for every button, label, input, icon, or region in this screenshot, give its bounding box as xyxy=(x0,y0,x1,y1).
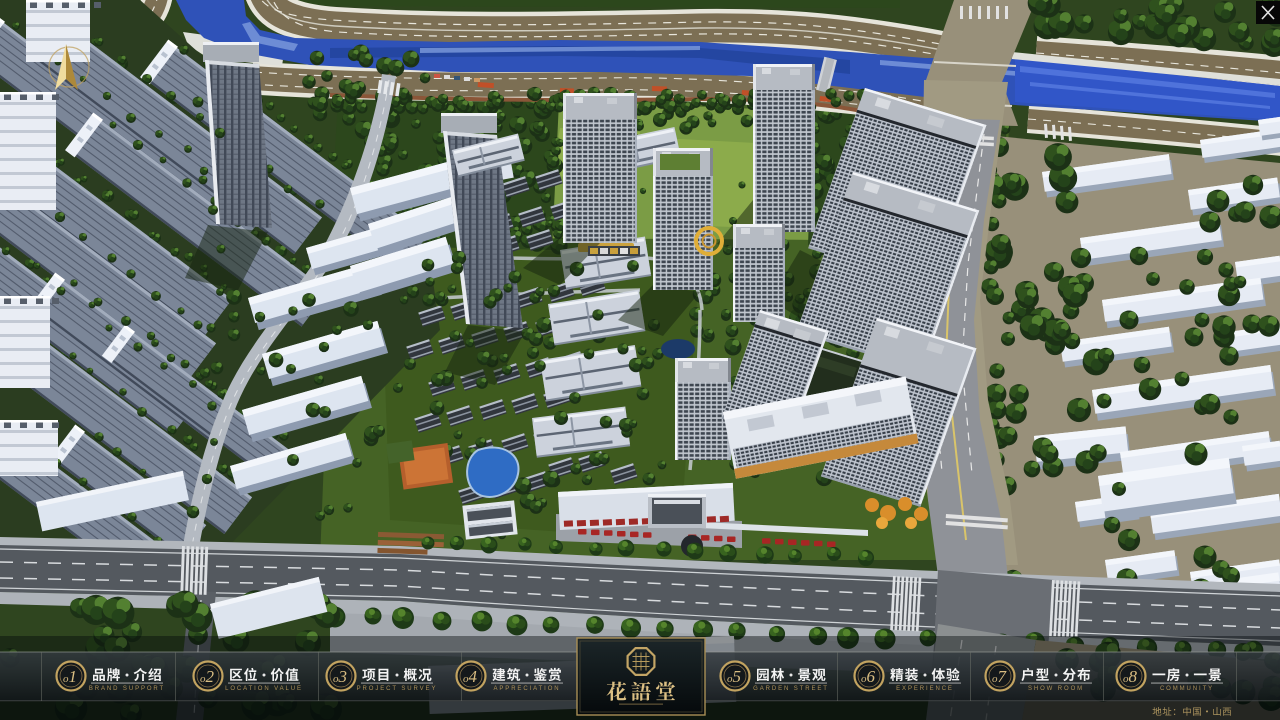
svg-text:BRAND SUPPORT: BRAND SUPPORT xyxy=(89,686,165,692)
svg-text:SHOW ROOM: SHOW ROOM xyxy=(1028,686,1084,692)
svg-text:LOCATION VALUE: LOCATION VALUE xyxy=(225,686,303,692)
svg-text:APPRECIATION: APPRECIATION xyxy=(493,686,560,692)
svg-text:GARDEN STREET: GARDEN STREET xyxy=(753,686,829,692)
svg-text:COMMUNITY: COMMUNITY xyxy=(1160,686,1214,692)
svg-text:PROJECT SURVEY: PROJECT SURVEY xyxy=(357,686,438,692)
svg-text:EXPERIENCE: EXPERIENCE xyxy=(896,686,954,692)
